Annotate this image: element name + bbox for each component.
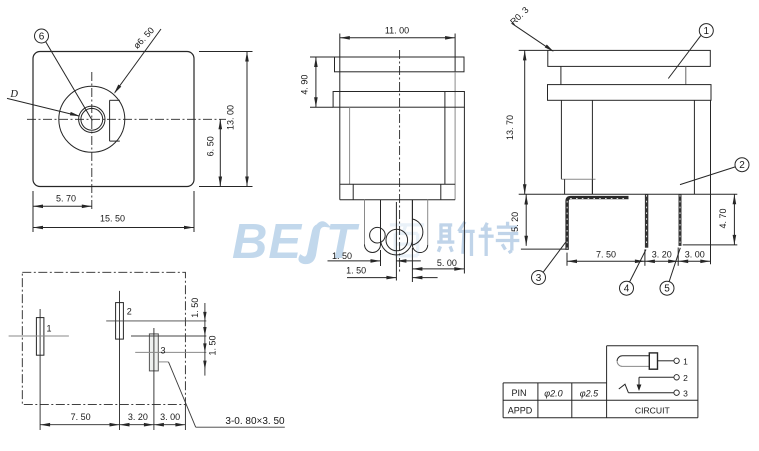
svg-text:1. 50: 1. 50 bbox=[208, 335, 218, 355]
svg-text:1. 50: 1. 50 bbox=[346, 265, 366, 275]
svg-text:4. 70: 4. 70 bbox=[718, 208, 728, 228]
svg-text:1: 1 bbox=[683, 356, 688, 366]
svg-text:CIRCUIT: CIRCUIT bbox=[635, 405, 671, 415]
svg-text:1. 50: 1. 50 bbox=[332, 251, 352, 261]
svg-text:1: 1 bbox=[46, 324, 51, 334]
svg-text:15. 50: 15. 50 bbox=[100, 214, 125, 224]
svg-text:APPD: APPD bbox=[508, 405, 533, 415]
svg-text:3. 20: 3. 20 bbox=[652, 249, 672, 259]
svg-text:2: 2 bbox=[739, 160, 745, 171]
svg-text:2: 2 bbox=[127, 307, 132, 317]
svg-text:3. 00: 3. 00 bbox=[160, 412, 180, 422]
svg-text:13. 70: 13. 70 bbox=[505, 115, 515, 140]
svg-text:6: 6 bbox=[39, 31, 45, 42]
svg-text:7. 50: 7. 50 bbox=[71, 412, 91, 422]
svg-text:3: 3 bbox=[536, 273, 542, 284]
svg-text:4. 90: 4. 90 bbox=[300, 75, 310, 95]
svg-text:3: 3 bbox=[160, 346, 165, 356]
svg-text:3-0. 80×3. 50: 3-0. 80×3. 50 bbox=[225, 416, 285, 427]
svg-text:2: 2 bbox=[683, 373, 688, 383]
svg-text:φ2.0: φ2.0 bbox=[544, 388, 562, 398]
svg-text:1. 50: 1. 50 bbox=[190, 298, 200, 318]
svg-text:φ2.5: φ2.5 bbox=[580, 388, 599, 398]
svg-text:4: 4 bbox=[624, 284, 630, 295]
svg-text:5. 20: 5. 20 bbox=[510, 212, 520, 232]
svg-text:PIN: PIN bbox=[511, 388, 526, 398]
svg-text:D: D bbox=[9, 89, 18, 100]
svg-text:7. 50: 7. 50 bbox=[596, 249, 616, 259]
svg-text:BE: BE bbox=[232, 215, 302, 269]
svg-text:5. 70: 5. 70 bbox=[56, 194, 76, 204]
svg-text:5. 00: 5. 00 bbox=[437, 258, 457, 268]
svg-text:3. 20: 3. 20 bbox=[128, 412, 148, 422]
svg-text:3: 3 bbox=[683, 388, 688, 398]
svg-text:1: 1 bbox=[704, 26, 710, 37]
svg-text:6. 50: 6. 50 bbox=[205, 136, 215, 156]
svg-text:13. 00: 13. 00 bbox=[226, 105, 236, 130]
svg-text:3. 00: 3. 00 bbox=[685, 249, 705, 259]
svg-text:5: 5 bbox=[664, 284, 670, 295]
svg-text:11. 00: 11. 00 bbox=[385, 25, 409, 35]
